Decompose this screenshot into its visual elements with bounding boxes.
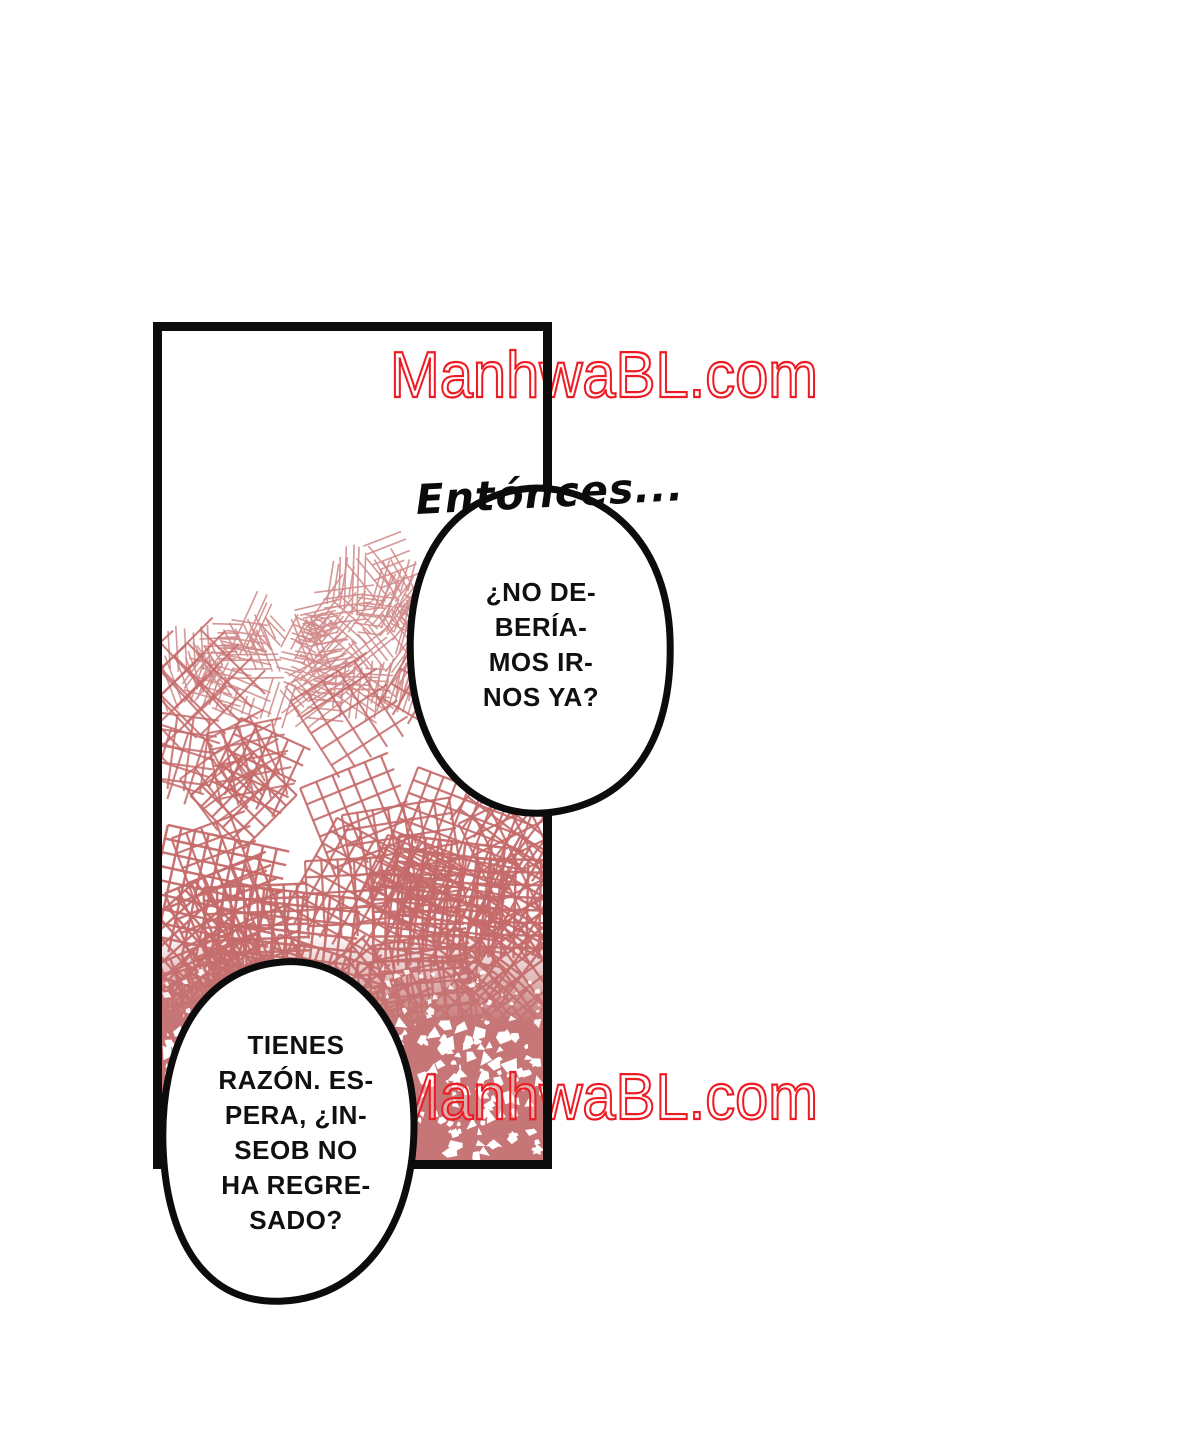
panel-artwork: ManhwaBL.com ManhwaBL.com	[0, 0, 1200, 1444]
watermark-text-bottom: ManhwaBL.com	[390, 1060, 818, 1133]
bubble-line: ¿NO DE-	[451, 575, 631, 610]
bubble-line: RAZÓN. ES-	[191, 1063, 401, 1098]
speech-bubble-bottom-text: TIENES RAZÓN. ES- PERA, ¿IN- SEOB NO HA …	[191, 1028, 401, 1238]
watermark-text-top: ManhwaBL.com	[390, 338, 818, 411]
speech-bubble-top-text: ¿NO DE- BERÍA- MOS IR- NOS YA?	[451, 575, 631, 715]
bubble-line: SEOB NO	[191, 1133, 401, 1168]
bubble-line: MOS IR-	[451, 645, 631, 680]
bubble-line: NOS YA?	[451, 680, 631, 715]
bubble-line: SADO?	[191, 1203, 401, 1238]
bubble-line: PERA, ¿IN-	[191, 1098, 401, 1133]
comic-page: ManhwaBL.com ManhwaBL.com Entónces... ¿N…	[0, 0, 1200, 1444]
bubble-line: TIENES	[191, 1028, 401, 1063]
bubble-line: HA REGRE-	[191, 1168, 401, 1203]
bubble-line: BERÍA-	[451, 610, 631, 645]
